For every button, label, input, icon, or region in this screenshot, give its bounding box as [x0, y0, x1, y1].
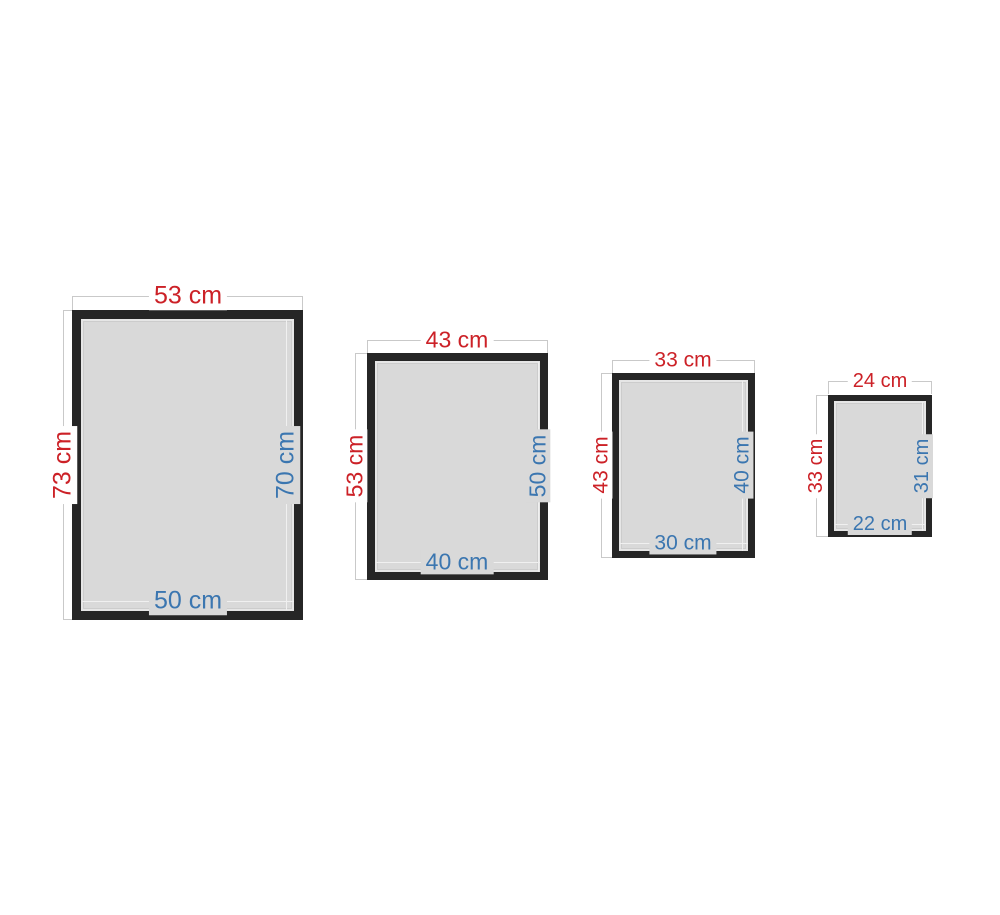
- dimension-tick: [367, 340, 368, 353]
- outer-height-label: 33 cm: [805, 434, 827, 498]
- outer-width-label: 53 cm: [149, 282, 227, 310]
- outer-height-label: 43 cm: [589, 431, 612, 498]
- dimension-tick: [828, 381, 829, 394]
- inner-height-label: 31 cm: [911, 434, 933, 498]
- inner-width-label: 30 cm: [649, 531, 716, 554]
- outer-width-label: 24 cm: [848, 370, 912, 392]
- dimension-tick: [355, 353, 367, 354]
- dimension-tick: [601, 557, 612, 558]
- dimension-tick: [302, 296, 303, 310]
- outer-height-label: 73 cm: [49, 426, 77, 504]
- dimension-tick: [63, 619, 72, 620]
- dimension-tick: [612, 360, 613, 373]
- outer-width-label: 33 cm: [649, 348, 716, 371]
- dimension-tick: [355, 579, 367, 580]
- dimension-tick: [72, 296, 73, 310]
- dimension-tick: [931, 381, 932, 394]
- picture-frame: [72, 310, 303, 620]
- dimension-tick: [63, 310, 72, 311]
- dimension-tick: [547, 340, 548, 353]
- inner-width-label: 50 cm: [149, 587, 227, 615]
- outer-width-label: 43 cm: [421, 327, 494, 352]
- dimension-tick: [754, 360, 755, 373]
- inner-width-label: 22 cm: [848, 513, 912, 535]
- inner-height-label: 40 cm: [730, 431, 753, 498]
- dimension-tick: [601, 373, 612, 374]
- picture-frame: [367, 353, 548, 580]
- dimension-tick: [816, 395, 828, 396]
- frame-size-diagram: 53 cm 73 cm 70 cm 50 cm 43 cm 53 cm 50 c…: [0, 0, 1000, 915]
- outer-height-label: 53 cm: [342, 430, 367, 503]
- inner-height-label: 50 cm: [525, 430, 550, 503]
- dimension-tick: [816, 536, 828, 537]
- inner-width-label: 40 cm: [421, 549, 494, 574]
- inner-height-label: 70 cm: [272, 426, 300, 504]
